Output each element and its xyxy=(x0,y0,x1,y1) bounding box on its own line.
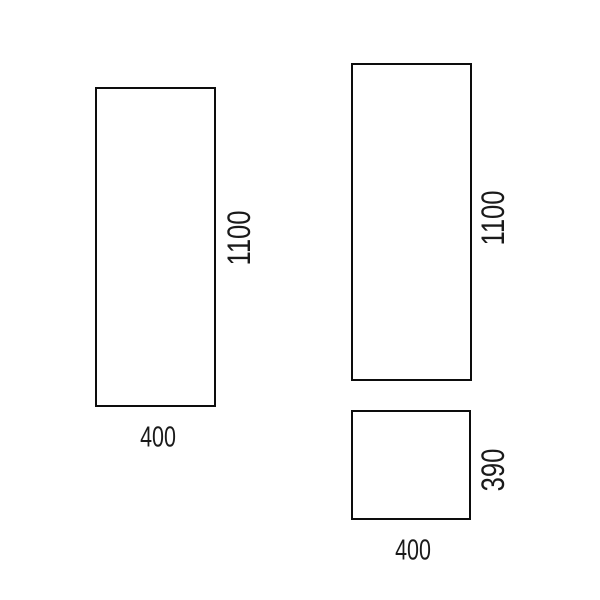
right-tall-panel-height-dimension: 1100 xyxy=(477,190,509,245)
left-panel-outline xyxy=(95,87,216,407)
left-panel-height-dimension: 1100 xyxy=(223,210,255,265)
right-small-panel-width-dimension: 400 xyxy=(395,537,431,566)
right-small-panel-outline xyxy=(351,410,471,520)
right-tall-panel-outline xyxy=(351,63,472,381)
right-small-panel-height-dimension: 390 xyxy=(477,449,509,492)
left-panel-width-dimension: 400 xyxy=(140,424,176,453)
dimension-drawing: 1100 400 1100 390 400 xyxy=(0,0,600,600)
